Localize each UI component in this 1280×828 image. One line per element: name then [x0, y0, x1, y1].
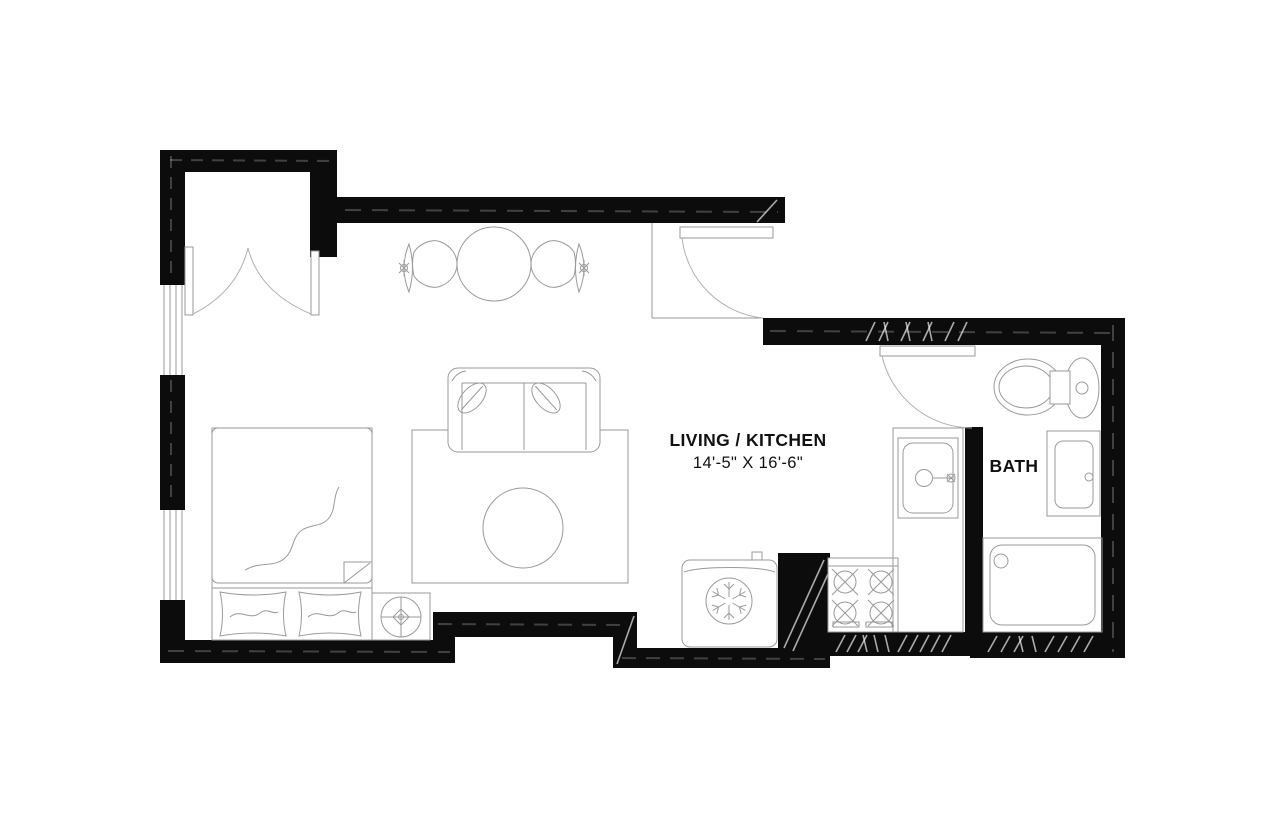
refrigerator [682, 552, 777, 647]
dining-chair [531, 241, 589, 292]
dining-chair [399, 241, 457, 292]
sink-drain [916, 470, 933, 487]
room-labels: LIVING / KITCHEN 14'-5" X 16'-6" BATH [669, 430, 1038, 476]
kitchen-counter [893, 428, 963, 632]
wall-left-bottom [160, 600, 185, 663]
nightstand [372, 593, 430, 640]
closet-double-door [185, 247, 319, 315]
table-lamp [381, 597, 421, 637]
wall-bath-bottom [970, 632, 1125, 658]
bathroom-door-swing [882, 356, 972, 428]
sofa [448, 368, 600, 452]
shower-drain [994, 554, 1008, 568]
toilet [994, 358, 1099, 418]
wall-kitchen-bath-divider [965, 427, 983, 632]
blanket-fold [344, 562, 372, 583]
dining-set [399, 227, 589, 301]
wall-closet-left [160, 150, 185, 285]
bathroom-door-leaf [880, 346, 975, 356]
bed-blanket [212, 428, 372, 583]
window [164, 510, 182, 600]
room-label-bath: BATH [990, 456, 1039, 476]
bed-frame [212, 428, 372, 640]
wall-closet-right [310, 150, 337, 257]
window [164, 285, 182, 375]
entry-door-swing [682, 238, 763, 318]
room-dimensions-living-kitchen: 14'-5" X 16'-6" [693, 454, 803, 472]
walls [160, 150, 1125, 668]
bed [212, 428, 372, 640]
wall-left-mid [160, 375, 185, 510]
entry-door [652, 223, 773, 318]
kitchen-sink [898, 438, 958, 518]
bathroom-vanity [1047, 431, 1100, 516]
pillow [299, 592, 361, 636]
bathroom-door [880, 346, 975, 428]
blanket-squiggle [245, 487, 339, 570]
stove [828, 558, 898, 632]
floor-plan-page: LIVING / KITCHEN 14'-5" X 16'-6" BATH [0, 0, 1280, 828]
floor-plan-drawing: LIVING / KITCHEN 14'-5" X 16'-6" BATH [0, 0, 1280, 828]
dining-table [457, 227, 531, 301]
room-label-living-kitchen: LIVING / KITCHEN [669, 430, 826, 450]
vanity-knob [1085, 473, 1093, 481]
fridge-handle [752, 552, 762, 560]
shower [983, 538, 1102, 632]
entry-door-leaf [680, 227, 773, 238]
pillow [220, 592, 286, 636]
coffee-table [483, 488, 563, 568]
